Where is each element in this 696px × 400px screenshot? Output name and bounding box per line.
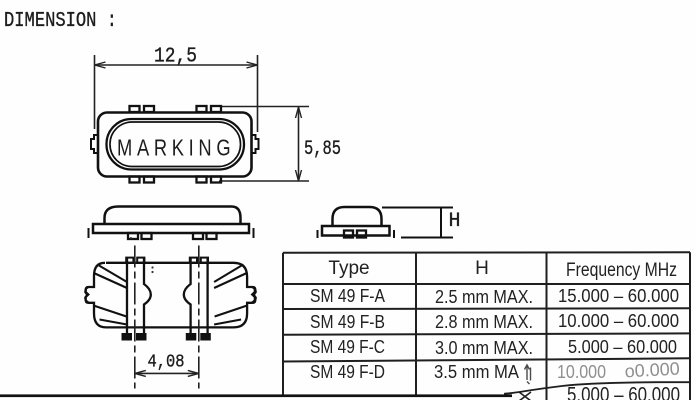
svg-text:DIMENSION :: DIMENSION : [4, 10, 117, 33]
svg-text:Type: Type [328, 258, 369, 279]
svg-text:SM 49 F-B: SM 49 F-B [310, 312, 385, 332]
svg-text:H: H [475, 258, 489, 279]
svg-text:3.5 mm MA: 3.5 mm MA [434, 362, 519, 382]
svg-text:Frequency MHz: Frequency MHz [566, 260, 677, 281]
svg-text:15.000 – 60.000: 15.000 – 60.000 [558, 286, 679, 306]
svg-text:SM 49 F-A: SM 49 F-A [310, 286, 385, 306]
svg-text:12,5: 12,5 [154, 46, 197, 69]
svg-text:2.8 mm MAX.: 2.8 mm MAX. [435, 312, 533, 332]
svg-text:2.5 mm MAX.: 2.5 mm MAX. [435, 287, 533, 307]
svg-text:3.0 mm MAX.: 3.0 mm MAX. [435, 338, 533, 358]
svg-text:H: H [449, 210, 461, 233]
svg-text:5.000 – 60.000: 5.000 – 60.000 [567, 384, 680, 400]
svg-text:10.000 – 60.000: 10.000 – 60.000 [558, 311, 679, 331]
svg-text:o0.000: o0.000 [624, 359, 680, 382]
svg-text:5.000 – 60.000: 5.000 – 60.000 [568, 337, 677, 357]
svg-text:SM 49 F-D: SM 49 F-D [310, 362, 385, 382]
svg-text:4,08: 4,08 [148, 352, 185, 373]
svg-text:MARKING: MARKING [117, 135, 235, 161]
svg-text:5,85: 5,85 [304, 138, 341, 161]
svg-text:10.000: 10.000 [557, 362, 606, 382]
svg-text:SM 49 F-C: SM 49 F-C [310, 337, 385, 357]
